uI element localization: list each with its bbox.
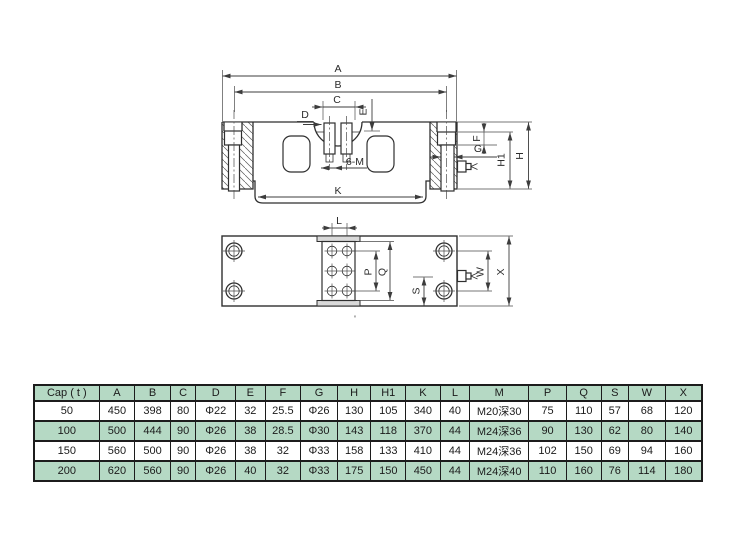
bolt-shaft [229,145,240,191]
table-cell: 150 [371,461,406,481]
table-cell: 80 [170,401,195,421]
table-cell: 160 [566,461,601,481]
plan-view: L P Q S W X ' [222,215,513,324]
side-view: A B C D E 6-M K G [222,63,532,203]
table-cell: Φ33 [301,441,338,461]
table-cell: 68 [629,401,666,421]
table-cell: 150 [34,441,99,461]
dim-label-h: H [514,152,526,160]
table-cell: 100 [34,421,99,441]
column-header: Cap ( t ) [34,385,99,401]
table-cell: 90 [170,421,195,441]
column-header: L [440,385,470,401]
table-cell: 158 [337,441,371,461]
column-header: P [529,385,567,401]
table-cell: Φ26 [196,441,236,461]
table-cell: 32 [265,461,301,481]
table-cell: Φ30 [301,421,338,441]
table-cell: 38 [236,421,266,441]
table-cell: M20深30 [470,401,529,421]
table-cell: 114 [629,461,666,481]
table-cell: 180 [665,461,702,481]
table-cell: Φ22 [196,401,236,421]
table-cell: 620 [99,461,135,481]
dim-label-x: X [495,268,507,275]
column-header: H [337,385,371,401]
table-cell: 120 [665,401,702,421]
table-cell: 450 [99,401,135,421]
dim-label-f: F [471,135,483,141]
table-cell: 25.5 [265,401,301,421]
column-header: E [236,385,266,401]
table-cell: 143 [337,421,371,441]
table-cell: M24深40 [470,461,529,481]
column-header: C [170,385,195,401]
bolt-shaft [441,145,454,191]
table-cell: 410 [406,441,441,461]
table-cell: 44 [440,461,470,481]
column-header: Q [566,385,601,401]
table-cell: 57 [601,401,628,421]
beam-window-right [367,136,394,172]
table-cell: 80 [629,421,666,441]
table-cell: 50 [34,401,99,421]
table-cell: 105 [371,401,406,421]
table-cell: 32 [236,401,266,421]
table-cell: 69 [601,441,628,461]
column-header: W [629,385,666,401]
table-cell: 444 [135,421,171,441]
dim-label-s: S [411,287,423,294]
table-cell: Φ26 [196,461,236,481]
table-cell: 175 [337,461,371,481]
datasheet-page: A B C D E 6-M K G [0,0,742,553]
table-cell: 90 [170,441,195,461]
table-cell: 130 [337,401,371,421]
table-cell: 90 [170,461,195,481]
bolt-pattern-note: 6-M [346,156,364,168]
tick-mark: ' [354,314,356,324]
dim-label-q: Q [377,268,389,276]
dim-label-l: L [336,215,342,227]
table-row: 20062056090Φ264032Φ3317515045044M24深4011… [34,461,702,481]
column-header: H1 [371,385,406,401]
bolt-head [225,131,242,145]
table-cell: Φ26 [301,401,338,421]
dim-label-e: E [358,108,370,115]
table-cell: 500 [99,421,135,441]
table-cell: 76 [601,461,628,481]
column-header: F [265,385,301,401]
table-cell: 38 [236,441,266,461]
table-cell: 44 [440,441,470,461]
table-cell: 200 [34,461,99,481]
table-cell: 40 [440,401,470,421]
table-cell: 150 [566,441,601,461]
column-header: M [470,385,529,401]
column-header: G [301,385,338,401]
table-cell: 133 [371,441,406,461]
column-header: B [135,385,171,401]
dim-label-w: W [475,267,487,277]
dim-label-d: D [301,109,309,121]
table-cell: 398 [135,401,171,421]
table-cell: 370 [406,421,441,441]
table-cell: 90 [529,421,567,441]
dimension-table: Cap ( t )ABCDEFGHH1KLMPQSWX 5045039880Φ2… [33,384,703,482]
dim-label-b: B [334,79,341,91]
table-cell: 28.5 [265,421,301,441]
table-cell: 560 [135,461,171,481]
table-cell: 40 [236,461,266,481]
table-cell: 62 [601,421,628,441]
technical-drawing: A B C D E 6-M K G [0,0,742,380]
table-row: 10050044490Φ263828.5Φ3014311837044M24深36… [34,421,702,441]
table-cell: 102 [529,441,567,461]
load-pocket-arc [314,122,362,146]
table-cell: 160 [665,441,702,461]
table-row: 5045039880Φ223225.5Φ2613010534040M20深307… [34,401,702,421]
table-cell: 130 [566,421,601,441]
dim-label-c: C [333,94,341,106]
table-cell: M24深36 [470,441,529,461]
dim-table-body: 5045039880Φ223225.5Φ2613010534040M20深307… [34,401,702,481]
table-cell: 140 [665,421,702,441]
dim-label-h1: H1 [496,153,508,167]
dim-label-a: A [334,63,341,75]
column-header: X [665,385,702,401]
table-cell: 75 [529,401,567,421]
table-cell: Φ26 [196,421,236,441]
column-header: K [406,385,441,401]
cable-connector [458,161,478,172]
table-cell: 44 [440,421,470,441]
table-cell: Φ33 [301,461,338,481]
table-cell: 118 [371,421,406,441]
dim-label-p: P [363,268,375,275]
table-cell: 110 [566,401,601,421]
column-header: S [601,385,628,401]
table-cell: 110 [529,461,567,481]
table-cell: M24深36 [470,421,529,441]
table-cell: 94 [629,441,666,461]
table-row: 15056050090Φ263832Φ3315813341044M24深3610… [34,441,702,461]
column-header: D [196,385,236,401]
dim-table-header-row: Cap ( t )ABCDEFGHH1KLMPQSWX [34,385,702,401]
dim-label-k: K [334,185,341,197]
table-cell: 500 [135,441,171,461]
beam-window-left [283,136,310,172]
table-cell: 560 [99,441,135,461]
table-cell: 340 [406,401,441,421]
table-cell: 450 [406,461,441,481]
table-cell: 32 [265,441,301,461]
column-header: A [99,385,135,401]
